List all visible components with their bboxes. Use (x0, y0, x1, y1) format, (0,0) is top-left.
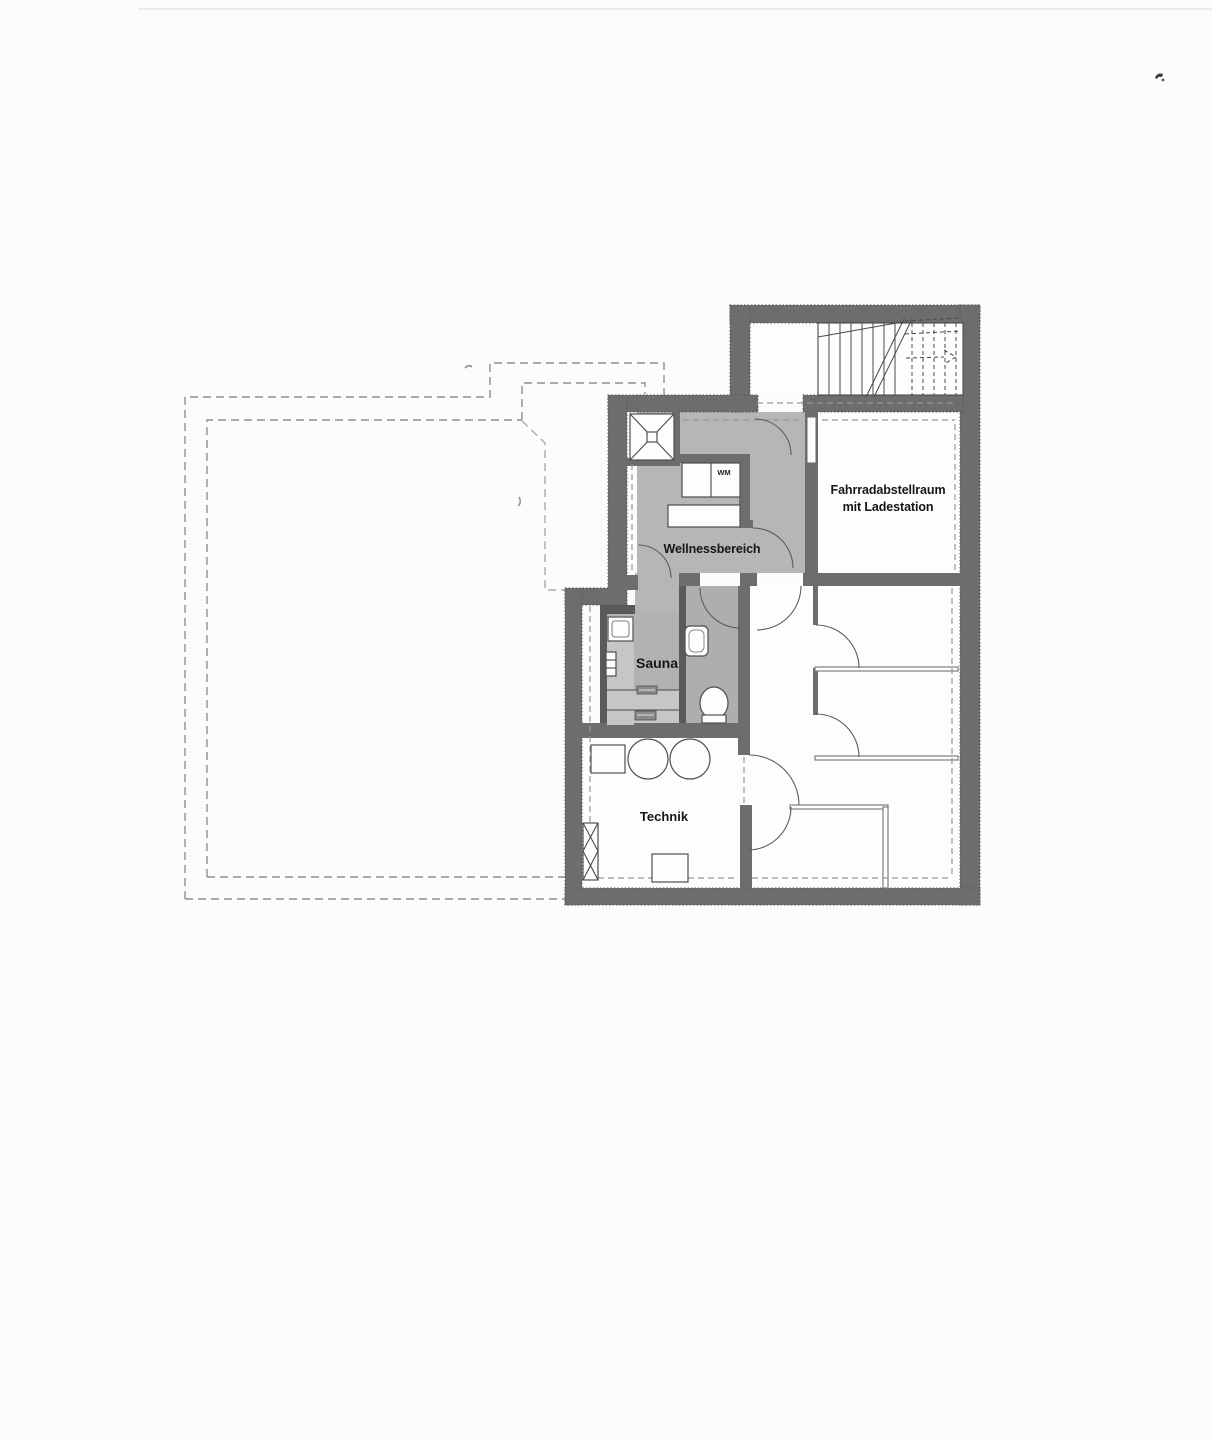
partition-storage-1 (815, 667, 958, 671)
boiler-tank-1 (628, 739, 668, 779)
wall-sauna-right (679, 586, 686, 730)
wall-technik-right-upper (738, 728, 750, 755)
wall-exterior-bottom (565, 888, 980, 905)
label-bike-room-line2: mit Ladestation (843, 500, 934, 514)
counter-box (668, 505, 740, 527)
wall-technik-top (565, 723, 750, 738)
wall-wm-niche-top (676, 454, 742, 463)
toilet-tank (702, 715, 726, 723)
partition-storage-3 (790, 805, 888, 809)
wall-top-left (608, 395, 758, 412)
wall-wm-niche-stub (739, 520, 753, 528)
wall-wc-right (738, 586, 750, 728)
wall-wc-top-left (679, 573, 700, 586)
technik-cabinet (591, 745, 625, 773)
wall-exterior-left-upper (608, 395, 627, 595)
rooms-storage-right (750, 586, 960, 888)
duct-shaft (583, 823, 598, 880)
wall-sauna-top (600, 605, 635, 614)
ink-speck (518, 497, 520, 506)
staircase (818, 318, 963, 397)
ink-speck (465, 366, 472, 368)
inner-dashed-diagonal (522, 421, 566, 590)
wall-corridor-upper (813, 586, 818, 625)
wall-bike-room-bottom (803, 573, 963, 586)
partition-storage-2 (815, 756, 958, 760)
technik-box (652, 854, 688, 882)
ink-speck (1155, 74, 1163, 80)
wall-corridor-lower (813, 668, 818, 715)
wall-exterior-left-lower (565, 588, 582, 905)
inner-dashed-outline (207, 420, 522, 877)
sauna-vent (637, 686, 657, 694)
partition-storage-4 (883, 807, 888, 888)
floorplan-drawing: WM Fahrr (0, 0, 1212, 1440)
wall-hall-stub (740, 573, 757, 586)
wall-stairwell-top (730, 305, 980, 323)
ink-speck (1162, 79, 1165, 82)
sauna-vent (635, 711, 656, 720)
label-sauna: Sauna (636, 655, 678, 671)
wall-wellness-bottom-left (608, 575, 638, 590)
toilet-bowl (700, 687, 728, 719)
shower-drain (647, 432, 657, 442)
wall-technik-right-lower (740, 805, 752, 888)
scanned-floorplan-page: WM Fahrr (0, 0, 1212, 1440)
washing-machine-label: WM (717, 468, 730, 477)
wall-wm-niche-right (739, 454, 750, 528)
label-technik: Technik (640, 809, 689, 824)
boiler-tank-2 (670, 739, 710, 779)
sauna-wall-item (606, 652, 616, 676)
bike-room-door-leaf (807, 417, 816, 463)
label-bike-room-line1: Fahrradabstellraum (831, 483, 946, 497)
label-wellness: Wellnessbereich (664, 542, 761, 556)
